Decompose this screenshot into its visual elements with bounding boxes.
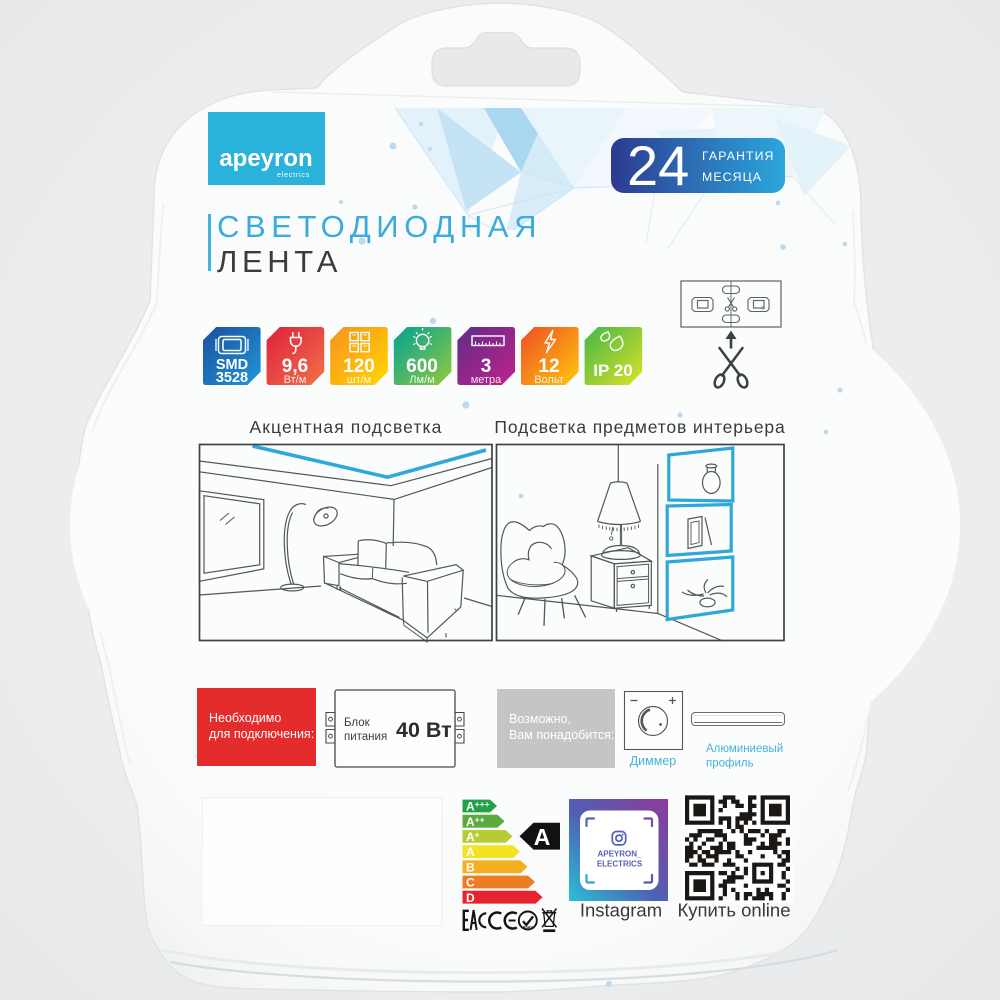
svg-text:профиль: профиль <box>706 758 754 770</box>
svg-text:Instagram: Instagram <box>580 900 662 921</box>
svg-text:A: A <box>466 845 475 859</box>
svg-text:IP 20: IP 20 <box>593 361 632 380</box>
svg-text:Лм/м: Лм/м <box>409 374 434 386</box>
svg-text:питания: питания <box>344 731 387 743</box>
svg-text:electrics: electrics <box>277 172 310 179</box>
svg-text:Диммер: Диммер <box>630 754 677 768</box>
svg-text:Купить online: Купить online <box>677 900 790 921</box>
svg-text:шт/м: шт/м <box>347 374 371 386</box>
svg-text:APEYRON_: APEYRON_ <box>597 850 642 859</box>
svg-text:Вольт: Вольт <box>534 374 564 386</box>
svg-text:ЛЕНТА: ЛЕНТА <box>217 244 342 279</box>
svg-text:ELECTRICS: ELECTRICS <box>597 860 643 869</box>
svg-text:apeyron: apeyron <box>219 145 312 172</box>
svg-text:ГАРАНТИЯ: ГАРАНТИЯ <box>702 149 775 163</box>
svg-text:Акцентная подсветка: Акцентная подсветка <box>249 417 442 437</box>
svg-text:метра: метра <box>471 374 502 386</box>
svg-text:Возможно,: Возможно, <box>509 712 571 726</box>
svg-text:Блок: Блок <box>344 717 371 729</box>
svg-text:Алюминиевый: Алюминиевый <box>706 743 783 755</box>
svg-text:Вам понадобится:: Вам понадобится: <box>509 728 614 742</box>
svg-text:D: D <box>466 891 475 905</box>
svg-text:3528: 3528 <box>216 370 248 386</box>
svg-text:A: A <box>534 824 551 850</box>
svg-text:для подключения:: для подключения: <box>209 727 314 741</box>
svg-text:Подсветка предметов интерьера: Подсветка предметов интерьера <box>494 417 785 437</box>
svg-text:24: 24 <box>627 134 689 197</box>
svg-text:Вт/м: Вт/м <box>284 374 307 386</box>
svg-text:Необходимо: Необходимо <box>209 711 281 725</box>
svg-text:СВЕТОДИОДНАЯ: СВЕТОДИОДНАЯ <box>217 209 542 244</box>
svg-text:RoHS: RoHS <box>523 926 534 930</box>
svg-text:МЕСЯЦА: МЕСЯЦА <box>702 170 762 184</box>
svg-text:40 Вт: 40 Вт <box>396 718 452 742</box>
svg-text:B: B <box>466 860 475 874</box>
svg-text:C: C <box>466 876 475 890</box>
